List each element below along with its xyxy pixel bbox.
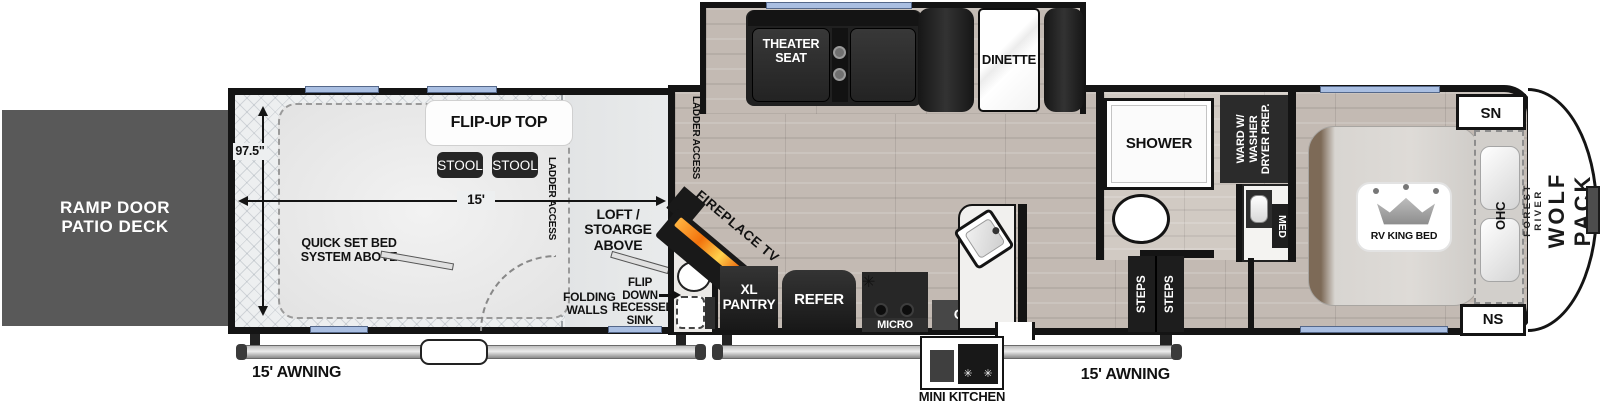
nook-side-unit: [705, 297, 715, 329]
dim-height-label: 97.5": [233, 143, 267, 160]
mini-kitchen-cabinet: [930, 350, 954, 382]
garage-room: 97.5" 15' FLIP-UP TOP STOOL STOOL LADDER…: [228, 88, 682, 334]
hitch-pin: [1586, 186, 1600, 234]
mini-kitchen: ✳✳: [920, 336, 1004, 390]
vanity-sink-unit: [1246, 190, 1272, 228]
floorplan-scene: RAMP DOOR PATIO DECK 15' AWNING 15' AWNI…: [0, 0, 1600, 402]
crown-dot-right: [1433, 188, 1439, 194]
mini-burner-icon: ✳: [963, 367, 972, 380]
cupholder-1: [833, 46, 846, 59]
ramp-door-deck: RAMP DOOR PATIO DECK: [2, 110, 228, 326]
range: ✳ MICRO: [862, 272, 928, 332]
kitchen-sink-basin: [964, 218, 1005, 259]
refer-label: REFER: [782, 270, 856, 330]
stool-left-label: STOOL: [437, 158, 483, 173]
window: [608, 326, 662, 333]
mini-kitchen-label: MINI KITCHEN: [894, 390, 1030, 402]
mini-burner-icon: ✳: [983, 367, 992, 380]
flip-up-top: FLIP-UP TOP: [425, 100, 573, 146]
window: [305, 86, 379, 93]
steps-divider: [1155, 256, 1157, 332]
brand-forest-river: FOREST RIVER: [1522, 165, 1544, 255]
rv-king-bed-label: RV KING BED: [1358, 231, 1450, 243]
steps-box: STEPS STEPS: [1128, 256, 1184, 332]
burner-ring-icon: ✳: [862, 272, 875, 292]
crown-icon: [1377, 194, 1435, 226]
shower-label: SHOWER: [1107, 101, 1211, 187]
kitchen-wall: [1018, 204, 1027, 332]
window: [1300, 326, 1448, 333]
bed-ohc-label: OHC: [1490, 190, 1512, 242]
window: [310, 326, 368, 333]
micro-label: MICRO: [862, 318, 928, 332]
crown-dot-left: [1373, 188, 1379, 194]
ward-label: WARD W/ WASHER DRYER PREP.: [1235, 96, 1273, 182]
theater-seat-label: THEATER SEAT: [748, 38, 834, 66]
flip-up-top-label: FLIP-UP TOP: [426, 101, 572, 145]
dim-length-line: [243, 200, 661, 202]
dinette-bench-right: [1044, 8, 1084, 112]
xl-pantry-label: XL PANTRY: [720, 266, 778, 330]
folding-walls-label: FOLDING WALLS: [563, 291, 611, 317]
steps-label-2: STEPS: [1158, 256, 1182, 332]
bath-wall-right: [1288, 92, 1296, 262]
dim-length-label: 15': [457, 191, 495, 210]
theater-backrest: [748, 10, 920, 26]
vanity-basin: [1250, 195, 1268, 223]
refer: REFER: [782, 270, 856, 330]
loft-storage-label: LOFT / STOARGE ABOVE: [568, 207, 668, 253]
dinette-label: DINETTE: [980, 10, 1038, 110]
ladder-access-wall-label: LADDER ACCESS: [684, 96, 701, 192]
dinette-table: DINETTE: [978, 8, 1040, 112]
flip-down-sink-label: FLIP DOWN RECESSED SINK: [612, 277, 668, 328]
window: [1320, 86, 1440, 93]
nook-flip-sink: [676, 296, 705, 329]
mini-kitchen-stove: ✳✳: [958, 344, 998, 384]
burner-right: [900, 303, 914, 317]
stool-right: STOOL: [492, 152, 538, 178]
burner-left: [874, 303, 888, 317]
theater-seat: THEATER SEAT: [746, 10, 922, 106]
bath-wall-left: [1096, 92, 1104, 260]
vanity-divider-wall: [1236, 184, 1242, 262]
steps-label-1: STEPS: [1130, 256, 1154, 332]
slideout-room: THEATER SEAT DINETTE: [700, 2, 1086, 114]
dim-height-line: [262, 111, 264, 311]
bath-toilet: [1112, 194, 1170, 244]
crown-dot-mid: [1403, 184, 1409, 190]
flip-sink-arrow: [659, 294, 677, 297]
window: [766, 2, 912, 9]
cupholder-2: [833, 68, 846, 81]
brand-rotor: FOREST RIVER WOLF PACK: [1522, 165, 1596, 255]
dinette-bench-left: [918, 8, 974, 112]
micro-strip: MICRO: [862, 318, 928, 332]
awning-label-left: 15' AWNING: [252, 364, 412, 382]
ward-box: WARD W/ WASHER DRYER PREP.: [1220, 95, 1288, 183]
stool-right-label: STOOL: [492, 158, 538, 173]
bedroom-wall: [1248, 258, 1254, 332]
awning-label-right: 15' AWNING: [1012, 366, 1170, 384]
theater-cushion-right: [850, 28, 916, 102]
window: [427, 86, 497, 93]
theater-console: [832, 28, 848, 102]
crown-badge: RV KING BED: [1356, 182, 1452, 252]
stool-left: STOOL: [437, 152, 483, 178]
xl-pantry: XL PANTRY: [720, 266, 778, 330]
shower: SHOWER: [1104, 98, 1214, 190]
ramp-door-label: RAMP DOOR PATIO DECK: [2, 110, 228, 326]
entry-step-box: [420, 339, 488, 365]
